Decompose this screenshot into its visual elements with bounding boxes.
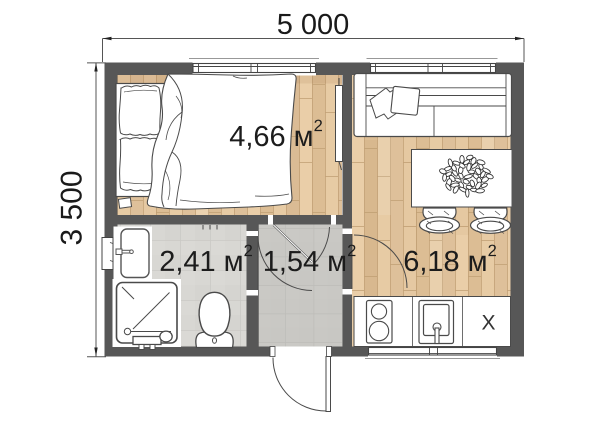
svg-text:X: X — [481, 311, 495, 334]
svg-text:6,18 м2: 6,18 м2 — [403, 242, 497, 278]
svg-text:3 500: 3 500 — [56, 170, 89, 245]
svg-text:2,41 м2: 2,41 м2 — [159, 242, 253, 278]
svg-text:1,54 м2: 1,54 м2 — [263, 242, 357, 278]
svg-text:4,66 м2: 4,66 м2 — [229, 117, 323, 153]
svg-text:5 000: 5 000 — [277, 9, 350, 41]
